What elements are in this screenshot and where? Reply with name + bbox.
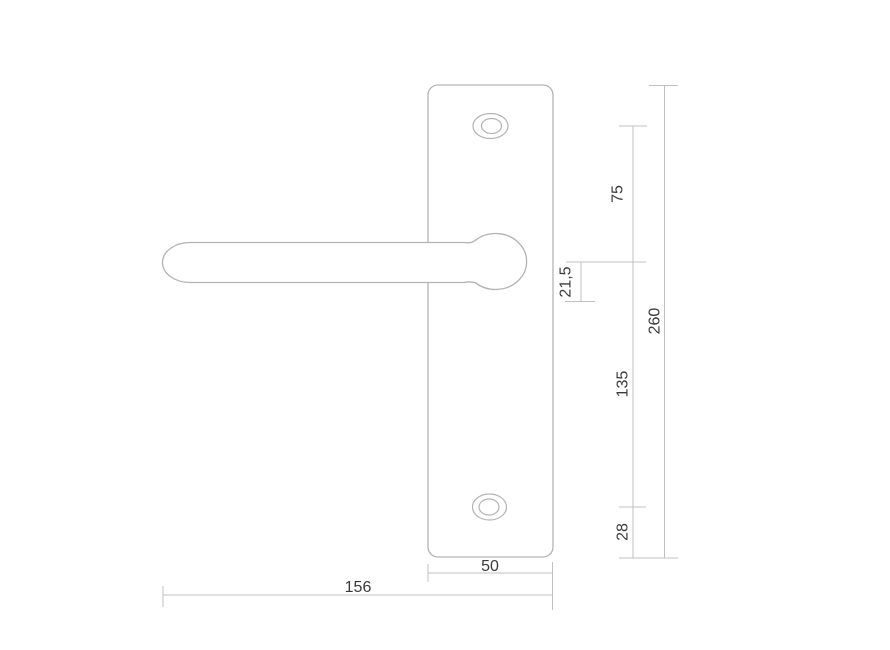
dim-label-260: 260: [647, 308, 664, 335]
dim-label-75: 75: [610, 185, 627, 203]
door-handle-dimension-drawing: 75 21,5 260 135 28 50 156: [0, 0, 890, 650]
dim-label-156: 156: [345, 579, 372, 596]
dim-label-50: 50: [481, 558, 499, 575]
dim-label-28: 28: [615, 523, 632, 541]
technical-drawing-canvas: 75 21,5 260 135 28 50 156: [0, 0, 890, 650]
backplate-outline: [428, 85, 553, 557]
dim-label-21-5: 21,5: [558, 266, 575, 297]
lever-handle-outline: [162, 234, 526, 290]
dim-label-135: 135: [615, 371, 632, 398]
